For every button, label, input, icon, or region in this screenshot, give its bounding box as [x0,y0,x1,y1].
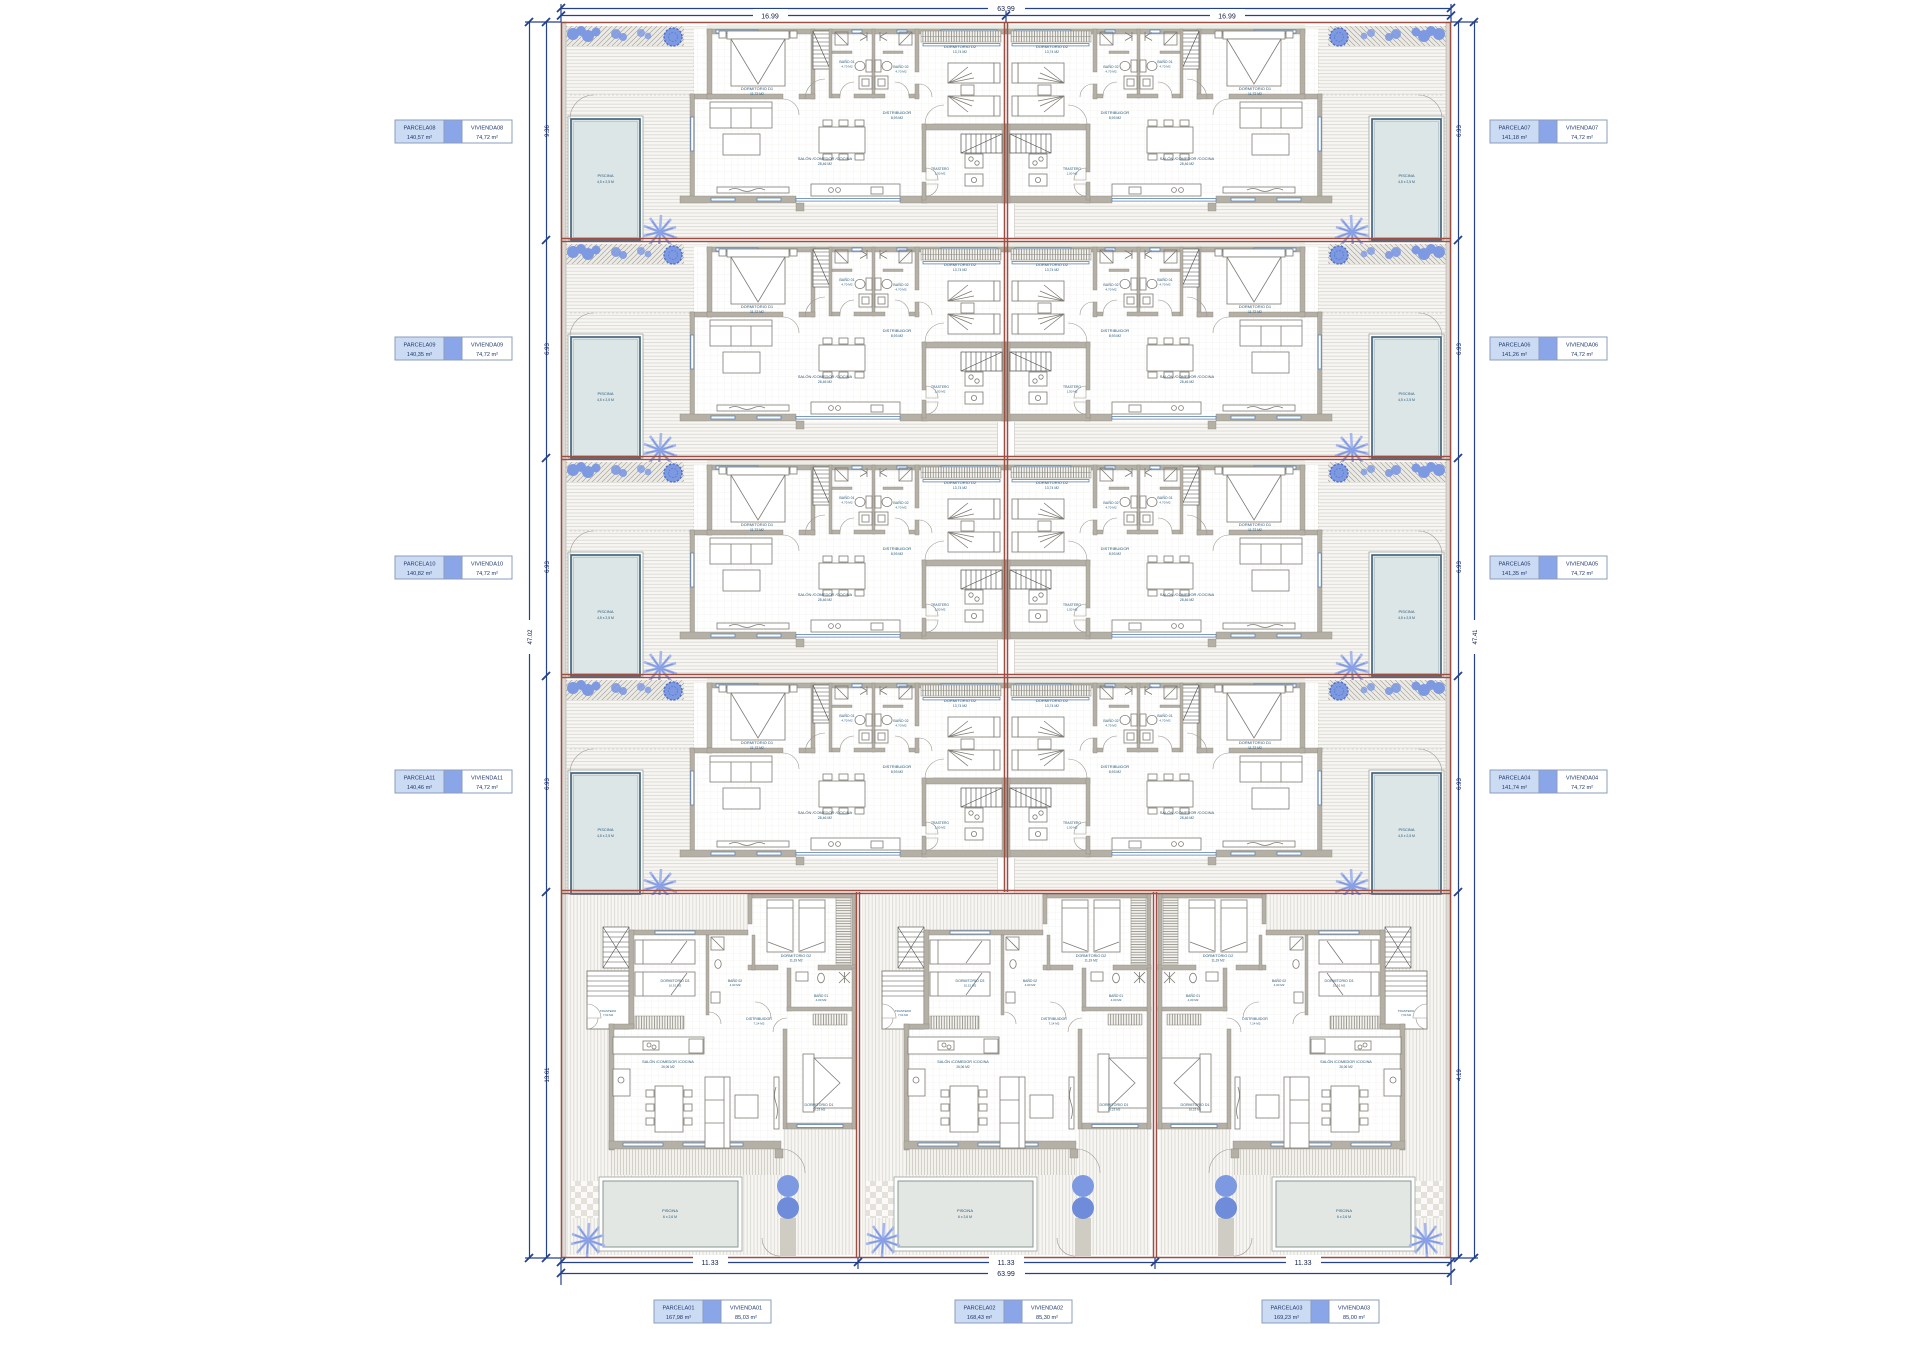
svg-text:74,72 m²: 74,72 m² [476,352,498,358]
svg-text:140,35 m²: 140,35 m² [407,352,432,358]
svg-text:6.93: 6.93 [1457,125,1463,137]
svg-text:VIVIENDA01: VIVIENDA01 [730,1306,762,1312]
svg-text:9.36: 9.36 [545,125,551,137]
svg-text:141,74 m²: 141,74 m² [1502,785,1527,791]
svg-text:16.99: 16.99 [761,14,779,21]
svg-text:85,03 m²: 85,03 m² [735,1315,757,1321]
svg-text:140,57 m²: 140,57 m² [407,135,432,141]
svg-text:6.93: 6.93 [1457,561,1463,573]
svg-text:PARCELA07: PARCELA07 [1499,126,1531,132]
svg-text:PARCELA04: PARCELA04 [1499,776,1531,782]
svg-text:11.33: 11.33 [702,1260,719,1267]
svg-text:VIVIENDA04: VIVIENDA04 [1566,776,1598,782]
svg-text:141,35 m²: 141,35 m² [1502,571,1527,577]
svg-text:VIVIENDA03: VIVIENDA03 [1338,1306,1370,1312]
svg-text:PARCELA11: PARCELA11 [404,776,436,782]
svg-text:PARCELA05: PARCELA05 [1499,562,1531,568]
svg-text:85,30 m²: 85,30 m² [1036,1315,1058,1321]
svg-text:140,82 m²: 140,82 m² [407,571,432,577]
svg-text:74,72 m²: 74,72 m² [1571,135,1593,141]
svg-text:6.93: 6.93 [545,778,551,790]
svg-text:169,23 m²: 169,23 m² [1274,1315,1299,1321]
svg-text:6.93: 6.93 [545,561,551,573]
svg-text:VIVIENDA08: VIVIENDA08 [471,126,503,132]
svg-text:PARCELA10: PARCELA10 [404,562,436,568]
svg-text:VIVIENDA07: VIVIENDA07 [1566,126,1598,132]
svg-text:74,72 m²: 74,72 m² [476,135,498,141]
svg-text:6.93: 6.93 [1457,343,1463,355]
svg-text:11.33: 11.33 [998,1260,1015,1267]
svg-text:6.93: 6.93 [1457,778,1463,790]
svg-text:VIVIENDA10: VIVIENDA10 [471,562,503,568]
svg-text:PARCELA09: PARCELA09 [404,343,436,349]
svg-text:11.33: 11.33 [1295,1260,1312,1267]
svg-text:PARCELA03: PARCELA03 [1271,1306,1303,1312]
svg-text:16.99: 16.99 [1218,14,1236,21]
svg-text:4.19: 4.19 [1457,1069,1463,1081]
svg-text:141,18 m²: 141,18 m² [1502,135,1527,141]
svg-text:47.02: 47.02 [528,629,534,645]
svg-text:13.61: 13.61 [545,1067,551,1083]
svg-text:63.99: 63.99 [997,1271,1015,1278]
svg-text:6.93: 6.93 [545,343,551,355]
svg-text:74,72 m²: 74,72 m² [1571,571,1593,577]
svg-text:74,72 m²: 74,72 m² [1571,352,1593,358]
svg-text:PARCELA06: PARCELA06 [1499,343,1531,349]
svg-text:47.41: 47.41 [1473,629,1479,645]
svg-text:85,00 m²: 85,00 m² [1343,1315,1365,1321]
svg-text:VIVIENDA11: VIVIENDA11 [471,776,503,782]
svg-text:168,43 m²: 168,43 m² [967,1315,992,1321]
svg-text:VIVIENDA06: VIVIENDA06 [1566,343,1598,349]
svg-text:74,72 m²: 74,72 m² [476,571,498,577]
svg-text:VIVIENDA02: VIVIENDA02 [1031,1306,1063,1312]
svg-text:VIVIENDA09: VIVIENDA09 [471,343,503,349]
svg-text:167,98 m²: 167,98 m² [666,1315,691,1321]
svg-text:PARCELA01: PARCELA01 [663,1306,695,1312]
svg-text:PARCELA02: PARCELA02 [964,1306,996,1312]
svg-text:74,72 m²: 74,72 m² [476,785,498,791]
svg-text:PARCELA08: PARCELA08 [404,126,436,132]
svg-text:140,46 m²: 140,46 m² [407,785,432,791]
svg-text:74,72 m²: 74,72 m² [1571,785,1593,791]
svg-text:141,26 m²: 141,26 m² [1502,352,1527,358]
svg-text:VIVIENDA05: VIVIENDA05 [1566,562,1598,568]
